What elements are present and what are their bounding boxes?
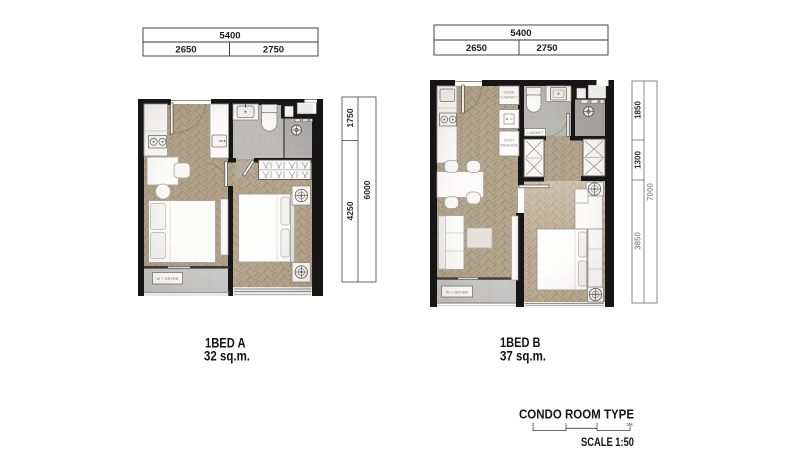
svg-text:3M.: 3M. bbox=[626, 422, 634, 427]
svg-text:SCALE 1:50: SCALE 1:50 bbox=[581, 437, 634, 449]
svg-text:5400: 5400 bbox=[510, 28, 531, 39]
svg-text:1300: 1300 bbox=[634, 151, 643, 169]
svg-text:2650: 2650 bbox=[175, 45, 196, 56]
svg-text:37 sq.m.: 37 sq.m. bbox=[500, 347, 546, 363]
svg-text:2750: 2750 bbox=[263, 45, 284, 56]
svg-text:2650: 2650 bbox=[466, 43, 487, 54]
svg-text:CONDO ROOM TYPE: CONDO ROOM TYPE bbox=[519, 407, 634, 422]
svg-text:32 sq.m.: 32 sq.m. bbox=[204, 347, 250, 363]
svg-text:7000: 7000 bbox=[646, 183, 655, 201]
svg-text:5400: 5400 bbox=[219, 31, 240, 42]
svg-text:4250: 4250 bbox=[345, 201, 355, 220]
svg-text:3850: 3850 bbox=[634, 232, 643, 250]
svg-text:1750: 1750 bbox=[345, 108, 355, 127]
svg-text:2750: 2750 bbox=[536, 43, 557, 54]
svg-text:1850: 1850 bbox=[634, 101, 643, 119]
svg-text:6000: 6000 bbox=[362, 180, 372, 199]
